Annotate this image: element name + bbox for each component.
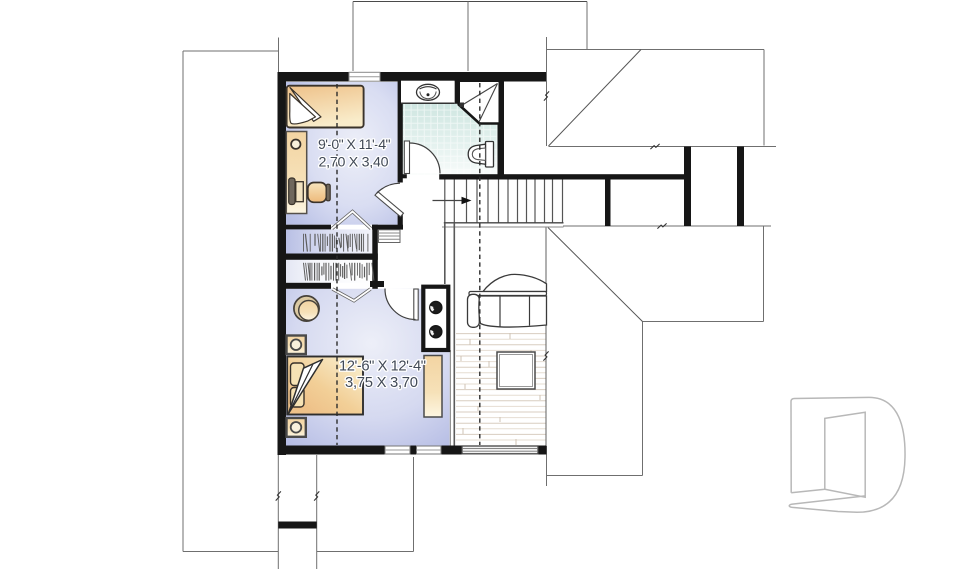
svg-text:3,75 X 3,70: 3,75 X 3,70 <box>345 375 418 391</box>
svg-text:2,70 X 3,40: 2,70 X 3,40 <box>319 155 389 171</box>
svg-text:12'-6" X 12'-4": 12'-6" X 12'-4" <box>339 359 426 375</box>
svg-text:9'-0" X 11'-4": 9'-0" X 11'-4" <box>318 137 391 153</box>
